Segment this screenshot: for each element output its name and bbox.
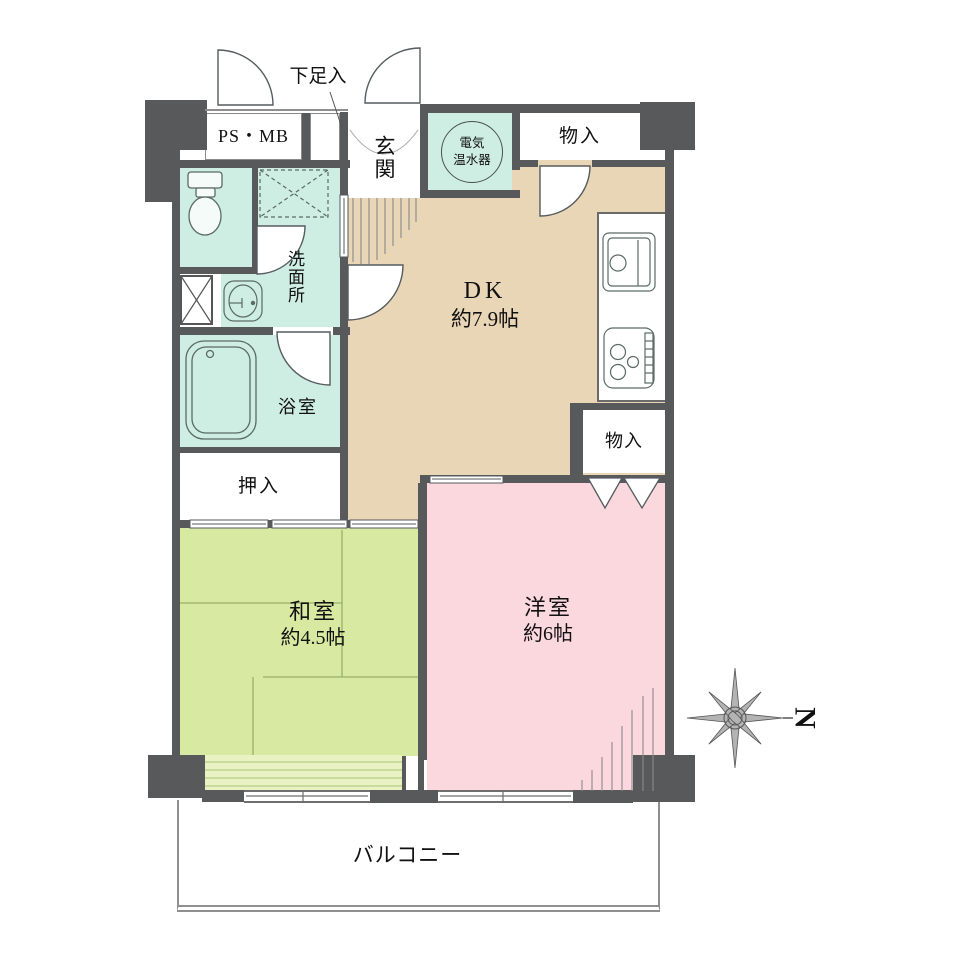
- kitchen-counter: [597, 212, 665, 402]
- western-room-name: 洋室: [467, 594, 629, 622]
- wall-bottom-left-ext: [202, 790, 244, 802]
- wall-divider-foot-left: [402, 756, 406, 793]
- pillar-top-left: [145, 100, 207, 150]
- compass-icon: N: [683, 666, 822, 771]
- western-room-label: 洋室 約6帖: [467, 594, 629, 670]
- pillar-bottom-left: [148, 755, 205, 798]
- water-heater-label: 電気 温水器: [441, 121, 503, 183]
- dk-name: DK: [408, 276, 562, 306]
- water-heater-line2: 温水器: [453, 152, 491, 169]
- dk-size: 約7.9帖: [408, 306, 562, 332]
- japanese-room-board-strip: [205, 755, 402, 793]
- water-heater-line1: 電気: [459, 135, 484, 152]
- storage-dk-label: 物入: [583, 410, 665, 473]
- balcony-label: バルコニー: [300, 840, 515, 870]
- toilet-room-floor: [180, 168, 252, 267]
- wall-storage-dk-top: [570, 403, 670, 410]
- pillar-top-right: [640, 102, 695, 150]
- wall-storage-top-bottom-a: [515, 160, 538, 167]
- wall-top: [420, 104, 648, 113]
- window-japanese-room: [244, 790, 370, 803]
- shoe-cabinet-box: [310, 113, 340, 167]
- japanese-room-label: 和室 約4.5帖: [233, 598, 393, 672]
- wall-closet-bottom: [178, 520, 426, 528]
- wall-western-top: [420, 475, 673, 483]
- wall-washroom-bottom-b: [333, 327, 350, 335]
- wall-storage-top-bottom-b: [592, 160, 668, 167]
- wall-shoe-left: [302, 113, 310, 162]
- wall-top-thin: [205, 109, 348, 111]
- wall-psmb-bottom: [178, 160, 350, 168]
- wall-room-divider: [418, 483, 427, 760]
- bathroom-label: 浴室: [258, 394, 338, 420]
- wall-washroom-bottom-a: [178, 327, 273, 335]
- wall-bottom-right-seg: [573, 790, 633, 803]
- wall-center-vertical: [340, 112, 348, 522]
- meter-box-door-arc: [218, 50, 273, 105]
- compass-north-label: N: [789, 707, 822, 729]
- japanese-room-name: 和室: [233, 598, 393, 626]
- front-door-arc: [365, 48, 420, 103]
- pipe-shaft-box: [180, 275, 213, 325]
- wall-storage-dk-left: [570, 403, 583, 478]
- closet-label: 押入: [178, 453, 340, 520]
- wall-divider-foot-right: [418, 756, 424, 793]
- corridor-floor: [348, 478, 420, 525]
- wall-entrance-right: [420, 113, 428, 193]
- washbasin-floor: [221, 274, 258, 327]
- pillar-top-left-ext: [145, 148, 175, 202]
- window-western-room: [438, 790, 573, 803]
- ps-mb-label: PS・MB: [205, 113, 302, 160]
- western-room-size: 約6帖: [467, 622, 629, 647]
- shoe-cabinet-label: 下足入: [278, 64, 358, 90]
- wall-toilet-bottom: [178, 267, 258, 274]
- storage-top-label: 物入: [520, 113, 640, 160]
- japanese-room-size: 約4.5帖: [233, 626, 393, 651]
- pillar-bottom-right: [633, 755, 695, 802]
- washroom-label: 洗面所: [281, 226, 305, 328]
- floor-plan: N PS・MB 下足入 玄関 電気 温水器 物入 洗面所 浴室 押入 DK 約7…: [0, 0, 960, 960]
- dk-label: DK 約7.9帖: [408, 276, 562, 350]
- entrance-label: 玄関: [369, 120, 397, 196]
- room-divider-gap: [406, 756, 418, 793]
- wall-right: [665, 150, 674, 760]
- bathroom-floor: [180, 335, 340, 447]
- wall-heater-bottom: [420, 190, 520, 198]
- wall-toilet-right: [252, 168, 258, 269]
